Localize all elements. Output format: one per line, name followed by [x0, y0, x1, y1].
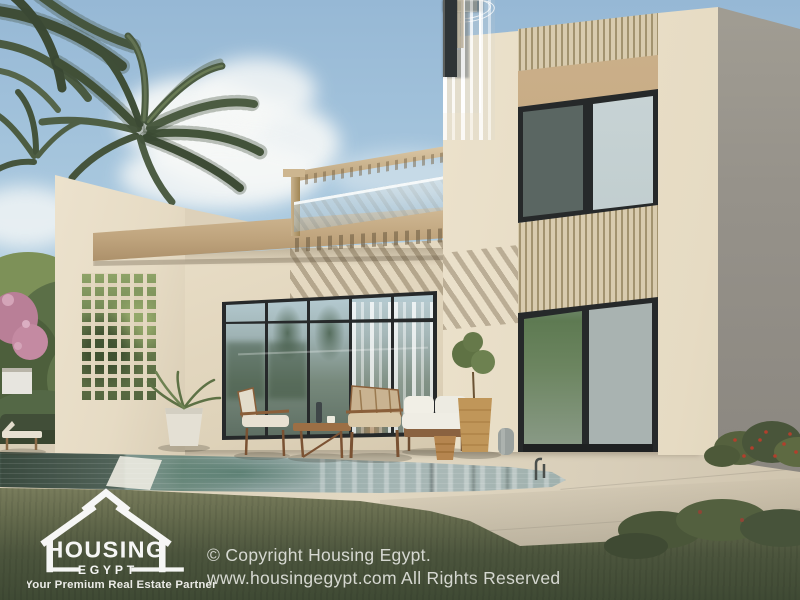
pool-handrail — [536, 459, 544, 480]
armchair-left — [238, 388, 289, 456]
lounge-chair — [2, 421, 42, 450]
logo-tagline: Your Premium Real Estate Partner — [27, 579, 215, 591]
copyright-line2: www.housingegypt.com All Rights Reserved — [207, 567, 560, 590]
gray-pot — [498, 428, 514, 455]
copyright-text: © Copyright Housing Egypt. www.housingeg… — [207, 544, 560, 590]
foreground-shrubs — [604, 499, 800, 559]
fern-plant — [148, 372, 220, 408]
white-planter-pot — [148, 372, 220, 446]
coffee-table — [293, 402, 351, 458]
logo-title: HOUSING — [46, 536, 165, 562]
villa-photo: HOUSING EGYPT Your Premium Real Estate P… — [0, 0, 800, 600]
armchair-right — [346, 386, 403, 458]
logo-subtitle: EGYPT — [78, 563, 138, 577]
flower-bushes — [704, 421, 800, 467]
small-basket — [434, 436, 456, 460]
copyright-line1: © Copyright Housing Egypt. — [207, 544, 560, 567]
furniture-shadows — [0, 444, 501, 463]
housing-egypt-logo: HOUSING EGYPT Your Premium Real Estate P… — [27, 486, 215, 592]
